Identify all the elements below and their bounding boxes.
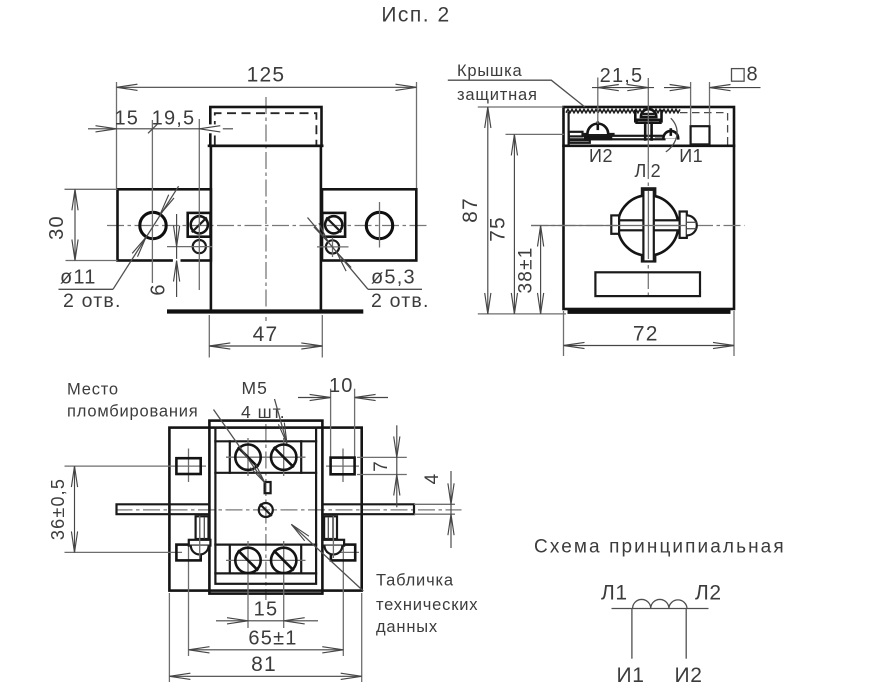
svg-text:Крышка: Крышка (457, 62, 522, 80)
svg-text:Место: Место (67, 381, 119, 399)
svg-text:Табличка: Табличка (376, 572, 454, 590)
svg-text:пломбирования: пломбирования (67, 402, 199, 420)
svg-text:защитная: защитная (457, 86, 538, 104)
svg-text:15: 15 (254, 599, 279, 621)
svg-text:36±0,5: 36±0,5 (48, 478, 68, 540)
svg-text:81: 81 (251, 653, 277, 676)
svg-text:технических: технических (376, 596, 478, 614)
svg-text:М5: М5 (242, 378, 268, 398)
svg-text:Исп. 2: Исп. 2 (381, 4, 450, 27)
svg-text:47: 47 (253, 323, 279, 346)
svg-text:2: 2 (651, 161, 661, 181)
svg-text:данных: данных (376, 618, 438, 636)
svg-text:ø11: ø11 (60, 267, 97, 289)
svg-text:87: 87 (459, 197, 482, 223)
svg-text:4: 4 (422, 473, 443, 485)
svg-text:125: 125 (247, 64, 286, 87)
svg-text:Схема принципиальная: Схема принципиальная (534, 537, 786, 558)
svg-text:Л1: Л1 (601, 582, 628, 605)
svg-text:6: 6 (148, 283, 170, 295)
svg-text:ø5,3: ø5,3 (371, 267, 416, 289)
svg-text:75: 75 (487, 216, 510, 242)
svg-text:2 отв.: 2 отв. (371, 290, 430, 312)
svg-text:2 отв.: 2 отв. (63, 290, 122, 312)
svg-text:15: 15 (114, 108, 139, 130)
svg-text:30: 30 (46, 215, 68, 240)
svg-text:Л2: Л2 (695, 582, 722, 605)
svg-text:И1: И1 (679, 146, 703, 166)
svg-text:7: 7 (371, 460, 392, 472)
svg-text:4 шт.: 4 шт. (241, 402, 286, 422)
svg-text:Л: Л (634, 161, 646, 181)
svg-text:19,5: 19,5 (152, 108, 196, 130)
svg-text:8: 8 (747, 64, 759, 86)
svg-text:38±1: 38±1 (516, 247, 537, 294)
svg-text:21,5: 21,5 (600, 65, 644, 87)
svg-text:65±1: 65±1 (248, 628, 297, 650)
svg-text:И1: И1 (617, 664, 645, 687)
svg-text:И2: И2 (675, 664, 703, 687)
svg-text:72: 72 (633, 323, 659, 346)
svg-text:И2: И2 (589, 146, 613, 166)
svg-text:10: 10 (329, 375, 354, 397)
